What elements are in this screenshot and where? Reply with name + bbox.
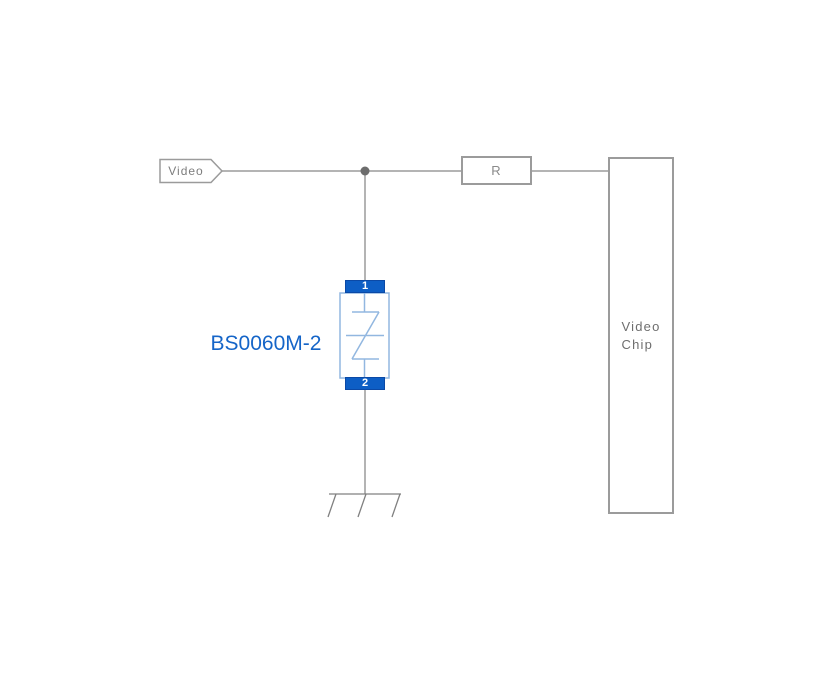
- tvs-pin-2-label: 2: [362, 377, 368, 389]
- schematic-graphics-layer: [0, 0, 832, 675]
- resistor-box: R: [461, 156, 532, 185]
- junction-dot: [361, 167, 370, 176]
- video-chip-label-line2: Chip: [621, 336, 660, 354]
- ground-symbol: [328, 494, 401, 517]
- net-label-video: Video: [160, 159, 212, 184]
- video-chip-label: Video Chip: [621, 318, 660, 354]
- schematic-canvas: Video R Video Chip 1 2 BS0060M-2: [0, 0, 832, 675]
- resistor-label: R: [491, 163, 501, 178]
- ground-hatch-right: [392, 494, 400, 517]
- tvs-symbol-group: [340, 293, 389, 378]
- ground-hatch-left: [328, 494, 336, 517]
- ground-hatch-middle: [358, 494, 366, 517]
- tvs-pin-1-label: 1: [362, 280, 368, 292]
- tvs-part-number: BS0060M-2: [196, 330, 336, 358]
- tvs-pin-1: 1: [345, 280, 385, 293]
- video-chip-label-line1: Video: [621, 318, 660, 336]
- video-chip-box: Video Chip: [608, 157, 674, 514]
- tvs-pin-2: 2: [345, 377, 385, 390]
